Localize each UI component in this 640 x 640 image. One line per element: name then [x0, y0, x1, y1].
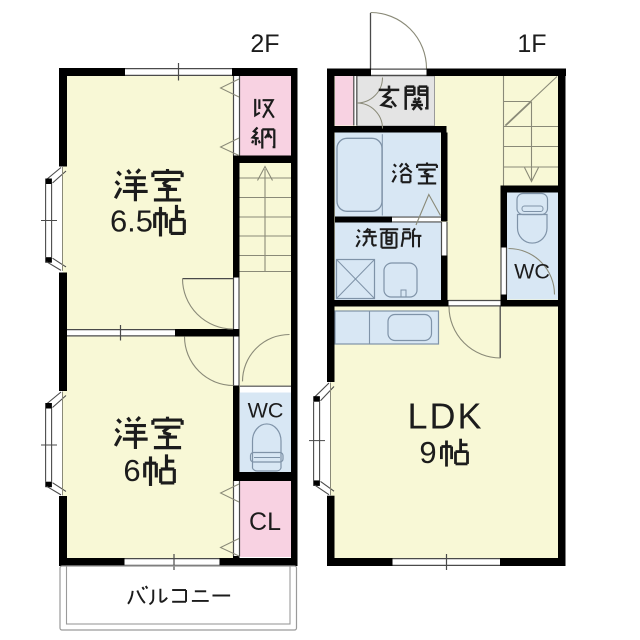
svg-text:WC: WC [248, 399, 284, 423]
svg-text:CL: CL [249, 508, 281, 536]
svg-text:LDK: LDK [407, 396, 483, 437]
svg-text:6.5: 6.5 [110, 204, 153, 239]
svg-text:9: 9 [419, 435, 436, 470]
svg-text:WC: WC [514, 260, 550, 284]
svg-text:1F: 1F [517, 30, 546, 58]
svg-text:6: 6 [123, 453, 140, 488]
svg-text:2F: 2F [250, 30, 279, 58]
